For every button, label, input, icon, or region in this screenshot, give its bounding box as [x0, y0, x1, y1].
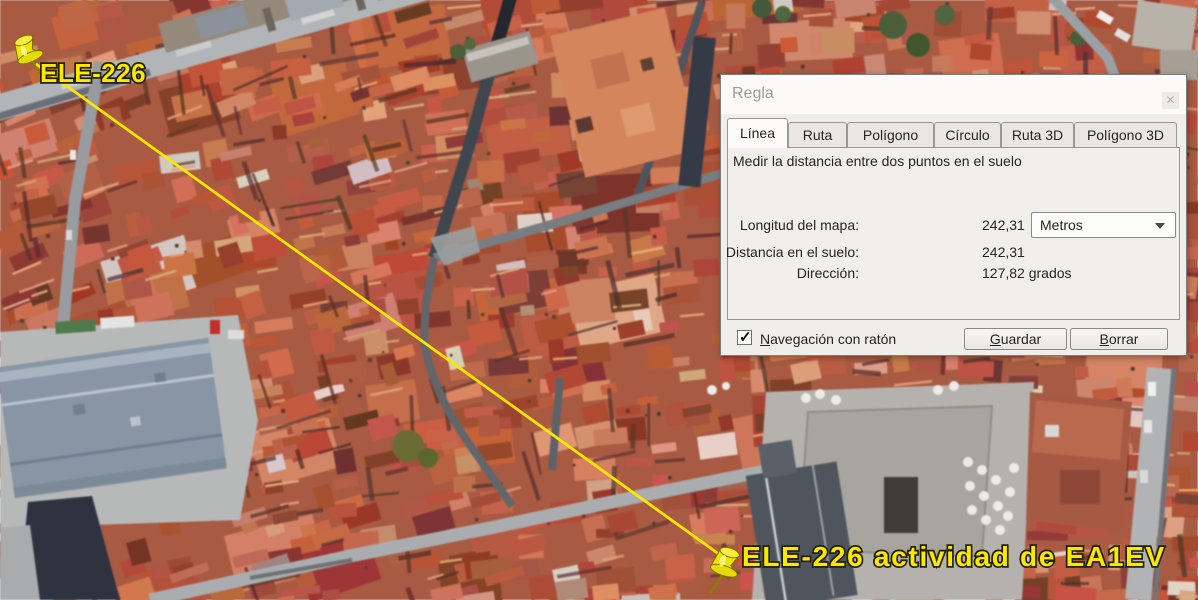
svg-text:ELE-226 actividad de EA1EV: ELE-226 actividad de EA1EV [742, 541, 1166, 572]
svg-text:ELE-226: ELE-226 [40, 58, 146, 88]
